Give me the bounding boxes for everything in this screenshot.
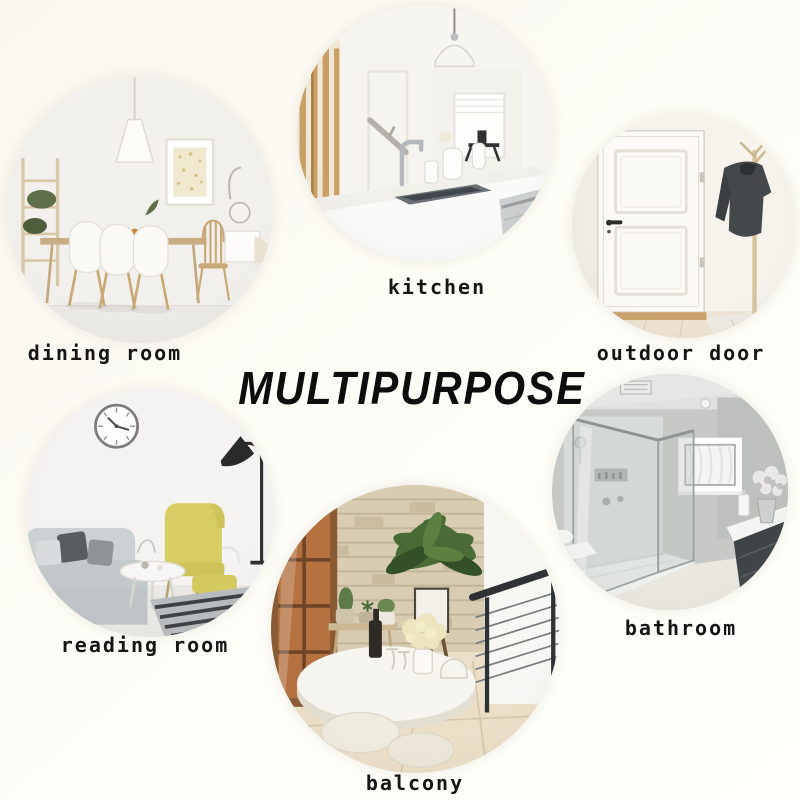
kitchen-illustration [297,5,553,261]
dining-room-label: dining room [28,341,182,365]
kitchen-photo [297,5,553,261]
multipurpose-collage: dining room kitchen outdoor door reading… [0,0,800,800]
kitchen-label: kitchen [388,275,486,299]
bathroom-illustration [552,374,788,610]
balcony-photo [271,485,559,773]
balcony-illustration [271,485,559,773]
balcony-label: balcony [366,771,464,795]
reading-room-label: reading room [61,633,230,657]
outdoor-door-illustration [572,114,796,338]
reading-room-photo [26,389,274,637]
bathroom-label: bathroom [625,616,737,640]
outdoor-door-photo [572,114,796,338]
dining-room-photo [7,77,273,343]
reading-room-illustration [26,389,274,637]
outdoor-door-label: outdoor door [597,341,766,365]
bathroom-photo [552,374,788,610]
dining-room-illustration [7,77,273,343]
multipurpose-title: MULTIPURPOSE [238,361,585,415]
